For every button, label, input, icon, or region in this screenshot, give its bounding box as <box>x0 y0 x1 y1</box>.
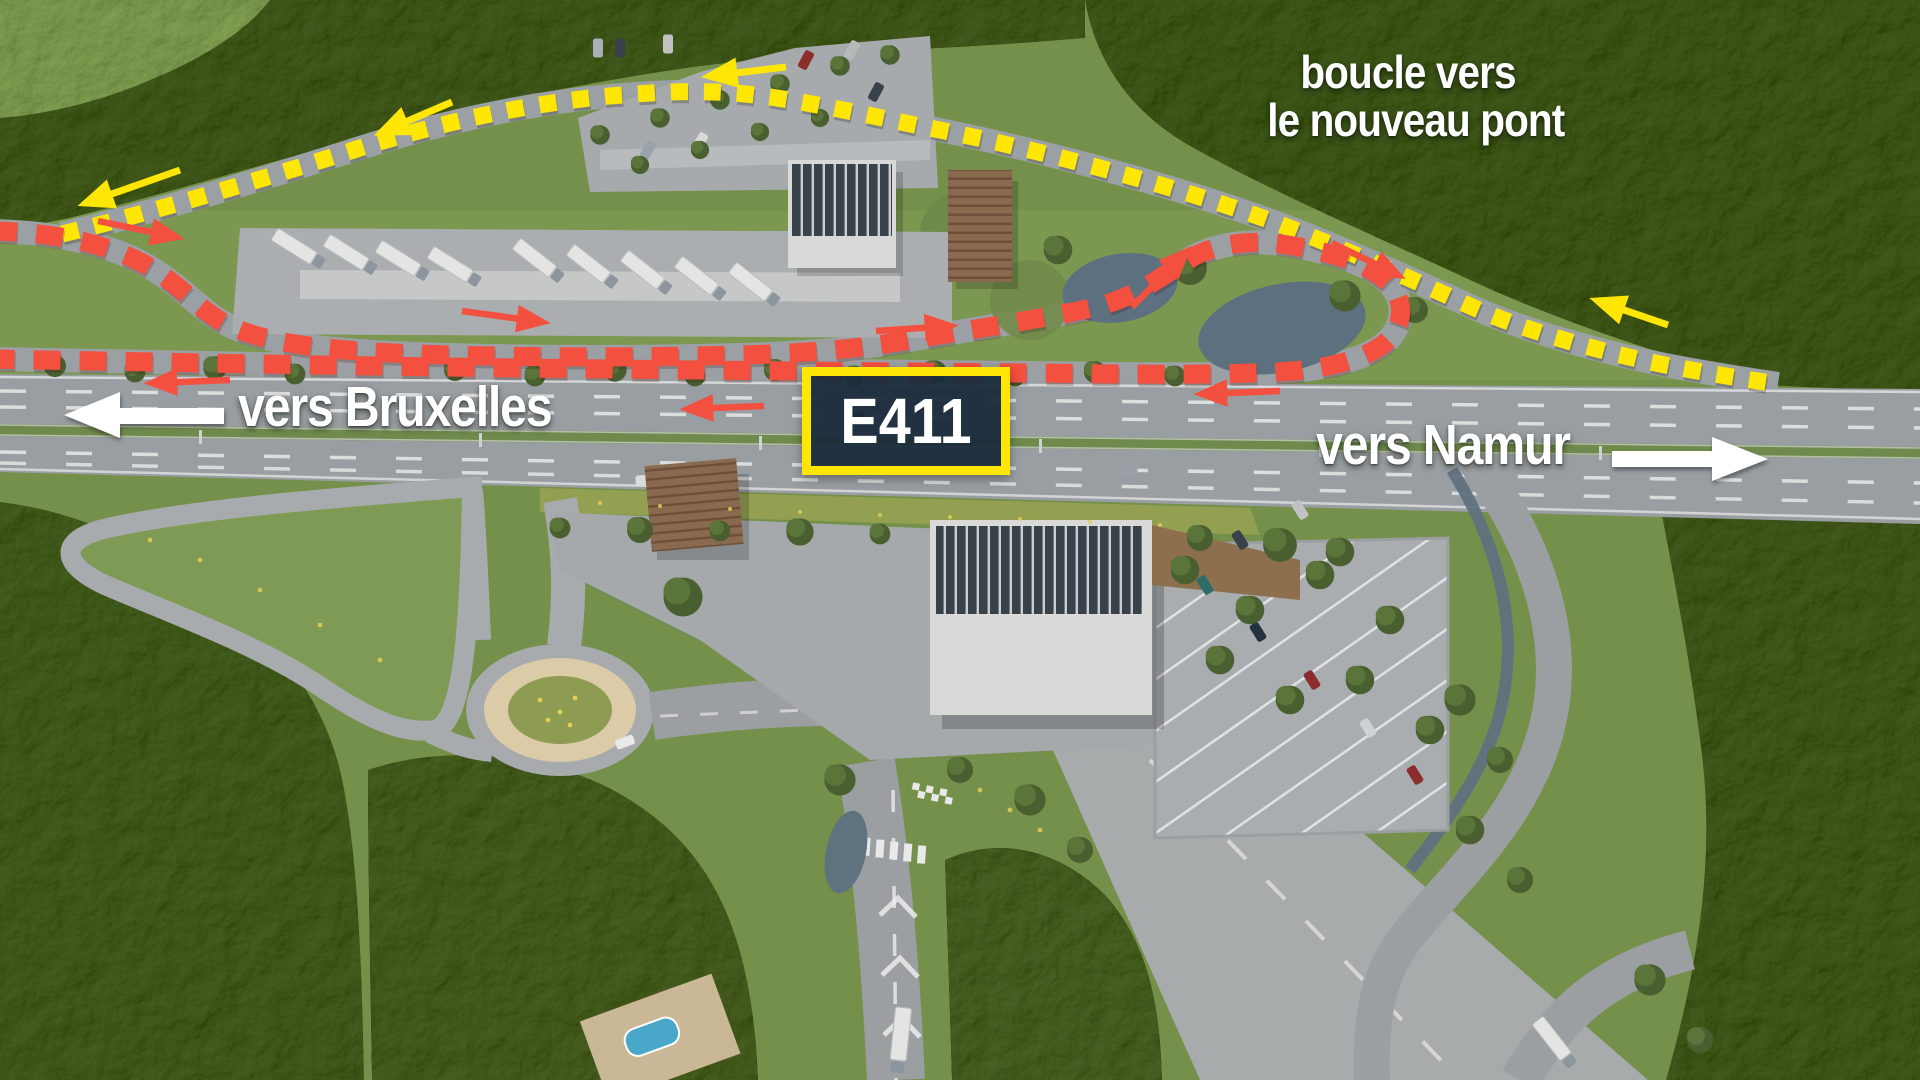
south-fuel-canopy <box>644 458 749 560</box>
north-shelter-building <box>948 170 1018 289</box>
aerial-map: boucle vers le nouveau pont vers Bruxell… <box>0 0 1920 1080</box>
direction-bruxelles-label: vers Bruxelles <box>238 374 551 440</box>
e411-road-badge-text: E411 <box>840 384 971 458</box>
e411-road-badge: E411 <box>802 367 1010 475</box>
loop-label: boucle vers le nouveau pont <box>1267 48 1549 145</box>
roundabout <box>466 644 654 776</box>
loop-label-line1: boucle vers <box>1267 48 1549 96</box>
direction-namur-label: vers Namur <box>1316 412 1570 478</box>
loop-label-line2: le nouveau pont <box>1267 96 1549 144</box>
aerial-render <box>0 0 1920 1080</box>
north-service-building <box>788 160 903 276</box>
